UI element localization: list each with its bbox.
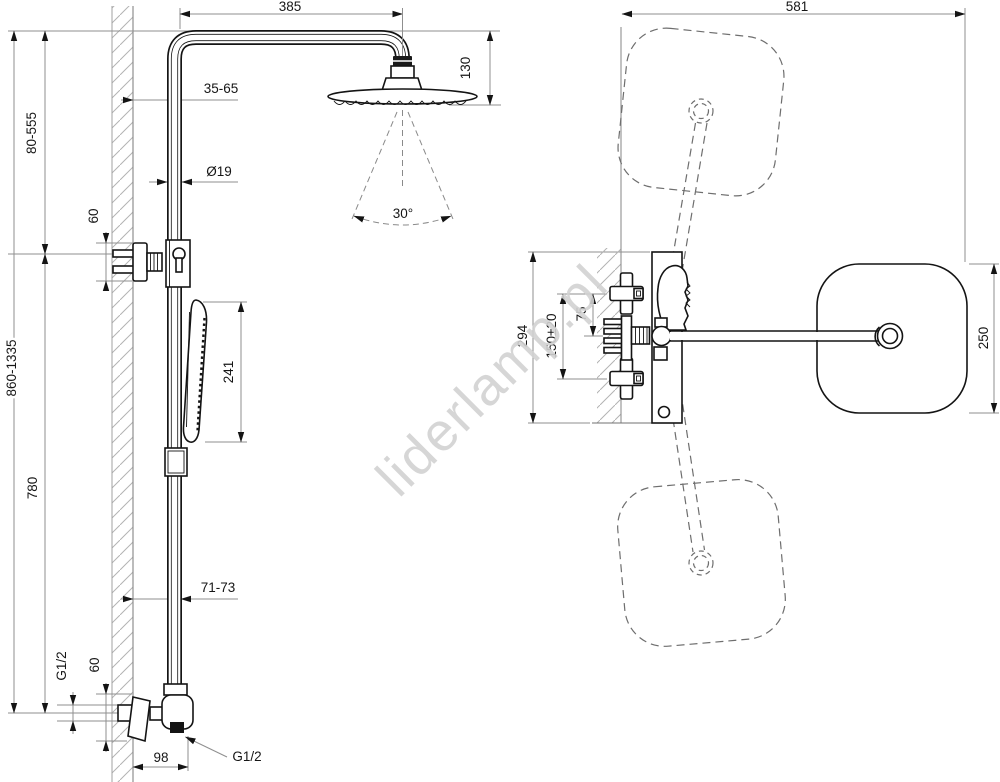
dim-arm-reach-label: 385: [279, 0, 302, 14]
dim-inlet-thread-label: G1/2: [54, 651, 69, 680]
dim-outlet-thread-label: G1/2: [232, 749, 261, 764]
bracket-thread: [147, 253, 162, 271]
bracket-prong: [113, 266, 134, 273]
dim-valve-depth-label: 98: [153, 750, 168, 765]
mixer-valve-side: [118, 684, 227, 757]
dim-rail-length-label: 780: [25, 477, 40, 500]
screw-hole: [659, 407, 670, 418]
slider-holder: [165, 448, 187, 476]
watermark: liderlamp.pl: [365, 253, 620, 508]
dim-head-width-label: 250: [976, 327, 991, 350]
dim-bracket-height-upper-label: 60: [86, 208, 101, 223]
bracket-prong: [113, 250, 134, 257]
head-position-lower: [614, 340, 788, 650]
escutcheon: [622, 316, 632, 360]
technical-drawing-canvas: 385 130 35-65 Ø19 60 80-555 860-1335 780…: [0, 0, 1000, 782]
valve-connector: [150, 707, 163, 720]
outlet-leader: [186, 737, 228, 757]
dim-wall-clearance-top-label: 35-65: [204, 81, 239, 96]
supply-connection: [604, 316, 671, 360]
head-position-upper: [614, 24, 788, 331]
arm-pivot: [652, 327, 671, 346]
side-view: 385 130 35-65 Ø19 60 80-555 860-1335 780…: [4, 0, 501, 782]
dim-overall-width-label: 581: [786, 0, 809, 14]
arm-ball-joint: [878, 324, 903, 349]
wall-section-side: [112, 6, 133, 782]
technical-drawing-page: 385 130 35-65 Ø19 60 80-555 860-1335 780…: [0, 0, 1000, 782]
dim-head-drop-label: 130: [458, 57, 473, 80]
overhead-shower-side: [328, 56, 477, 105]
hand-shower: [183, 300, 206, 442]
dim-bracket-height-lower-label: 60: [87, 657, 102, 672]
keyhole-slot: [176, 258, 182, 272]
dim-overall-height-label: 860-1335: [4, 339, 19, 396]
dimensions-side: [8, 8, 501, 771]
dim-spray-angle-label: 30°: [393, 206, 413, 221]
wall-hatch-front: [597, 248, 621, 423]
bracket-flange: [133, 243, 147, 281]
outlet-port: [170, 722, 184, 733]
overhead-shower-front: [670, 264, 967, 413]
dim-handshower-length-label: 241: [221, 361, 236, 384]
head-outline-upper: [614, 24, 788, 200]
head-outline-lower: [614, 476, 788, 649]
head-connector: [391, 66, 414, 78]
wall-hatch: [112, 6, 133, 782]
dim-bracket-travel-label: 80-555: [24, 112, 39, 154]
dim-pipe-diameter-label: Ø19: [206, 164, 232, 179]
dim-wall-clearance-bottom-label: 71-73: [201, 580, 236, 595]
pipe-collar: [164, 684, 187, 695]
